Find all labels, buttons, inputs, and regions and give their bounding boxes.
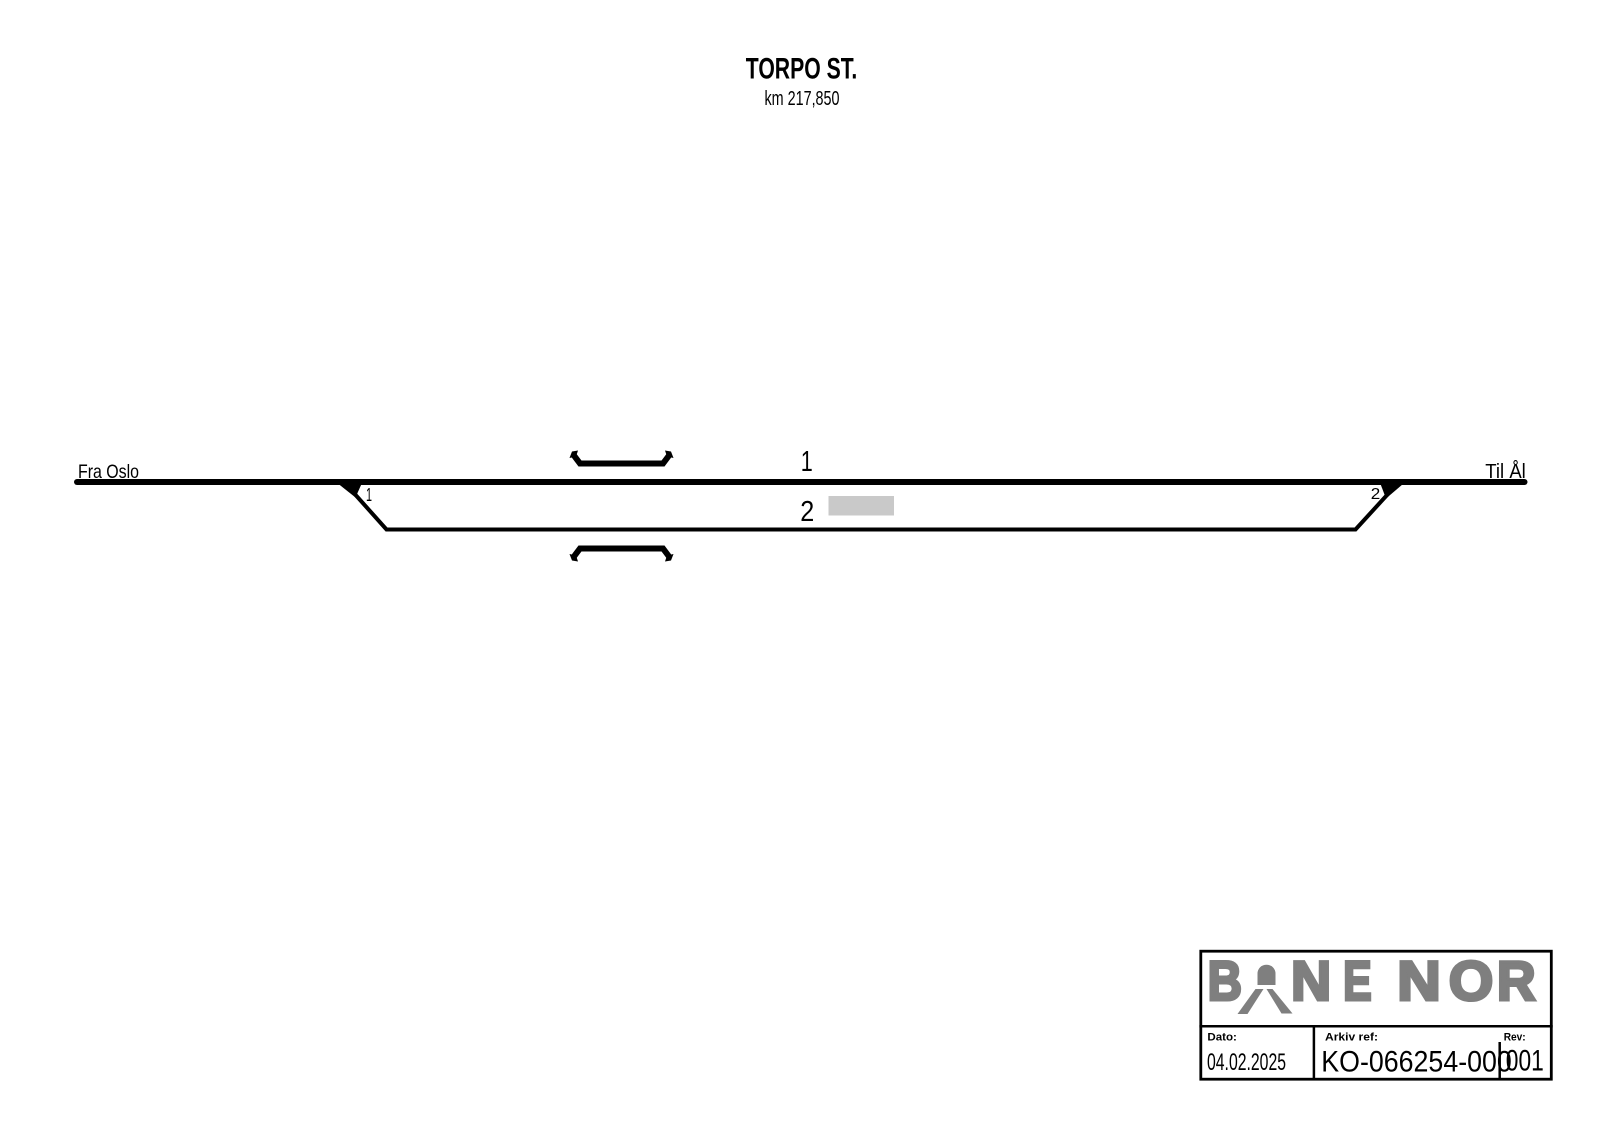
svg-text:E: E xyxy=(1343,949,1372,1012)
svg-text:O: O xyxy=(1449,951,1494,1013)
svg-text:Til Ål: Til Ål xyxy=(1485,460,1526,483)
svg-text:Fra Oslo: Fra Oslo xyxy=(78,461,139,483)
svg-text:B: B xyxy=(1208,950,1242,1012)
svg-text:Rev:: Rev: xyxy=(1504,1032,1526,1044)
svg-text:2: 2 xyxy=(800,496,814,528)
svg-text:TORPO ST.: TORPO ST. xyxy=(746,52,858,85)
svg-text:N: N xyxy=(1397,950,1441,1012)
svg-text:N: N xyxy=(1291,949,1331,1012)
svg-text:2: 2 xyxy=(1371,486,1381,503)
svg-text:04.02.2025: 04.02.2025 xyxy=(1207,1049,1286,1076)
svg-text:1: 1 xyxy=(366,485,372,505)
svg-text:001: 001 xyxy=(1506,1045,1544,1078)
svg-text:1: 1 xyxy=(801,446,813,478)
svg-text:km 217,850: km 217,850 xyxy=(765,87,840,110)
svg-text:Dato:: Dato: xyxy=(1207,1032,1237,1044)
svg-text:KO-066254-000: KO-066254-000 xyxy=(1321,1045,1512,1078)
svg-text:R: R xyxy=(1497,949,1536,1012)
svg-text:Arkiv ref:: Arkiv ref: xyxy=(1325,1032,1378,1044)
